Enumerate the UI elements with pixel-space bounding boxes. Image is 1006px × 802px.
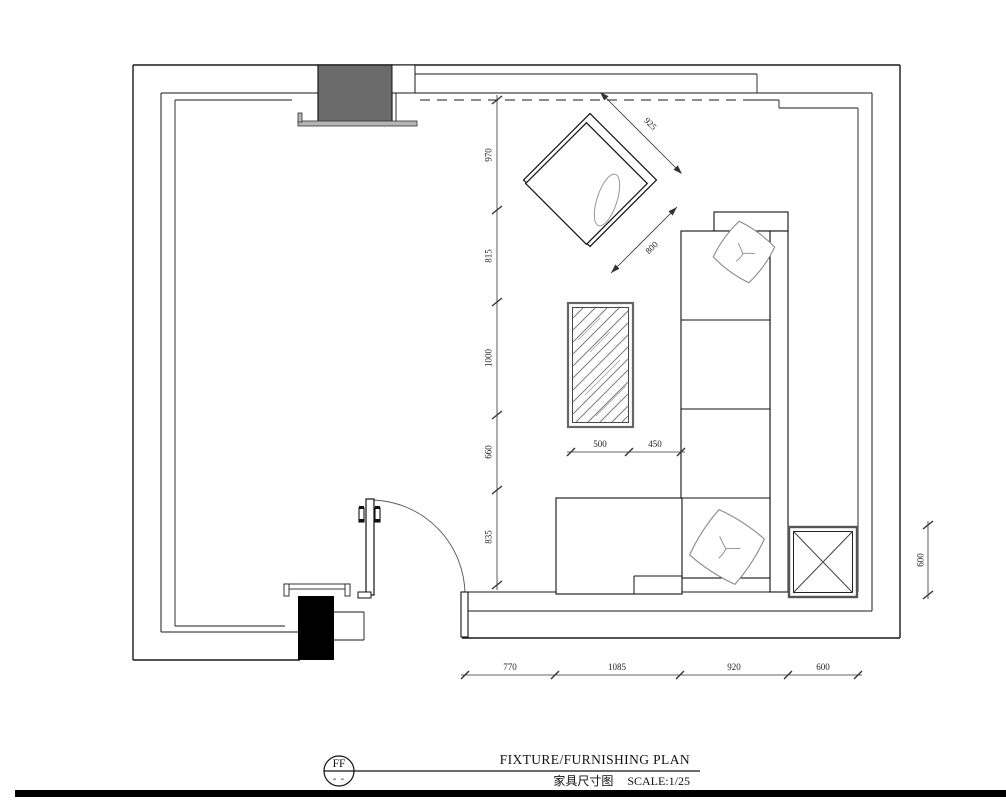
hinge-cap xyxy=(359,506,364,509)
concrete-column-filled xyxy=(298,596,334,660)
panel-inner-frame xyxy=(573,308,629,423)
hinge-cap xyxy=(375,506,380,509)
casing-end-tab xyxy=(345,584,350,596)
door-jamb-right xyxy=(461,592,468,637)
dim-label-left-4: 660 xyxy=(485,445,494,459)
door-leaf xyxy=(366,499,374,595)
dim-label-left-1: 970 xyxy=(485,148,494,162)
hatched-panel xyxy=(568,303,633,427)
plan-title-chinese: 家具尺寸图 xyxy=(553,774,613,788)
opening-casing-top xyxy=(298,121,417,126)
dim-label-right-600: 600 xyxy=(917,553,926,567)
sheet-border-bar xyxy=(15,790,1006,797)
floor-plan-sheet: 970 815 1000 660 835 770 1085 920 600 60… xyxy=(0,0,1006,802)
sofa-chaise xyxy=(556,498,682,594)
dim-label-500: 500 xyxy=(593,440,607,449)
wall-door-stub xyxy=(334,612,364,640)
dim-label-bottom-1: 770 xyxy=(503,663,517,672)
plan-title-english: FIXTURE/FURNISHING PLAN xyxy=(500,752,690,768)
side-table xyxy=(789,527,857,597)
plan-title-chinese-row: 家具尺寸图SCALE:1/25 xyxy=(553,772,690,789)
dim-label-450: 450 xyxy=(648,440,662,449)
concrete-column xyxy=(318,65,392,122)
drawing-ref-sub: - - xyxy=(333,774,345,785)
plan-scale: SCALE:1/25 xyxy=(627,774,690,788)
hinge-cap xyxy=(375,519,380,522)
column-bottom xyxy=(284,584,350,660)
lounge-chair xyxy=(523,114,657,248)
door-swing-arc xyxy=(372,500,465,595)
door xyxy=(358,499,468,637)
casing-end-tab xyxy=(298,113,302,122)
dim-label-left-5: 835 xyxy=(485,530,494,544)
chair-seat xyxy=(526,123,648,245)
plan-linework xyxy=(0,0,1006,802)
wall-bottom xyxy=(462,592,858,637)
dim-diag-800 xyxy=(611,207,677,273)
sofa-back-strip xyxy=(770,231,788,592)
column-recess xyxy=(392,65,415,93)
dim-label-bottom-2: 1085 xyxy=(608,663,626,672)
drawing-ref-code: FF xyxy=(333,758,346,770)
dim-label-left-3: 1000 xyxy=(485,349,494,367)
dim-label-left-2: 815 xyxy=(485,249,494,263)
dim-label-bottom-4: 600 xyxy=(816,663,830,672)
door-jamb-left xyxy=(358,592,371,598)
hinge-cap xyxy=(359,519,364,522)
opening-casing-bottom xyxy=(284,584,350,589)
dim-label-bottom-3: 920 xyxy=(727,663,741,672)
casing-end-tab xyxy=(284,584,289,596)
column-top xyxy=(298,65,417,126)
